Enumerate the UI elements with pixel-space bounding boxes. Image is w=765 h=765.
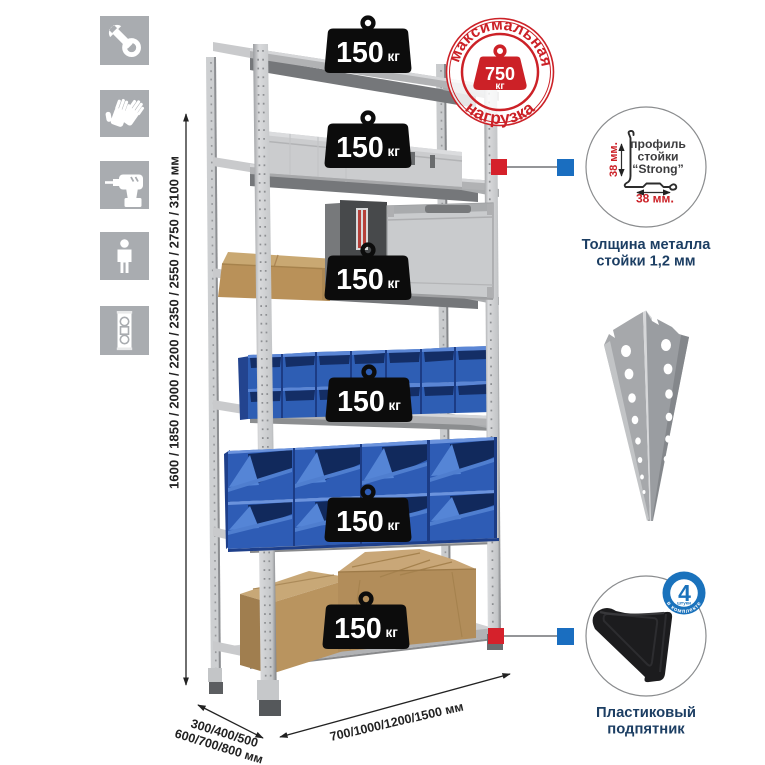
svg-text:38 мм.: 38 мм. <box>636 191 674 206</box>
svg-text:штуки: штуки <box>677 601 691 606</box>
svg-text:подпятник: подпятник <box>607 722 685 738</box>
svg-text:1600 / 1850 / 2000 / 2200 / 23: 1600 / 1850 / 2000 / 2200 / 2350 / 2550 … <box>167 156 182 489</box>
svg-text:Толщина металла: Толщина металла <box>582 237 712 253</box>
svg-text:38 мм.: 38 мм. <box>606 142 620 177</box>
svg-text:“Strong”: “Strong” <box>632 162 683 176</box>
svg-text:стойки 1,2 мм: стойки 1,2 мм <box>596 254 695 270</box>
svg-text:кг: кг <box>495 81 504 92</box>
svg-text:700/1000/1200/1500 мм: 700/1000/1200/1500 мм <box>329 700 465 744</box>
svg-text:Пластиковый: Пластиковый <box>596 705 696 721</box>
